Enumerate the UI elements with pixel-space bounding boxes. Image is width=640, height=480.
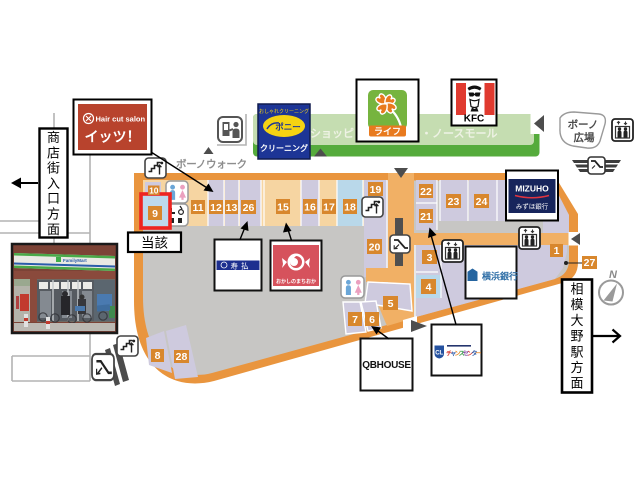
svg-text:商店街入口方面: 商店街入口方面 bbox=[47, 130, 60, 237]
svg-text:10: 10 bbox=[149, 186, 159, 196]
svg-text:18: 18 bbox=[344, 202, 356, 214]
svg-text:CL: CL bbox=[435, 351, 443, 357]
svg-text:ボーノウォーク: ボーノウォーク bbox=[176, 158, 247, 171]
svg-text:7: 7 bbox=[352, 314, 358, 326]
svg-text:ショッピ: ショッピ bbox=[310, 127, 354, 140]
svg-text:23: 23 bbox=[448, 196, 460, 208]
svg-text:5: 5 bbox=[388, 298, 394, 310]
svg-text:QBHOUSE: QBHOUSE bbox=[362, 360, 411, 371]
svg-text:KFC: KFC bbox=[464, 114, 485, 125]
svg-text:28: 28 bbox=[176, 351, 188, 363]
svg-text:ライフ: ライフ bbox=[374, 127, 401, 137]
svg-text:クリーニング: クリーニング bbox=[260, 143, 308, 153]
svg-text:15: 15 bbox=[277, 202, 289, 214]
svg-text:おかしのまちおか: おかしのまちおか bbox=[276, 278, 316, 285]
svg-text:20: 20 bbox=[369, 242, 381, 254]
svg-text:みずほ銀行: みずほ銀行 bbox=[516, 202, 549, 211]
svg-text:N: N bbox=[609, 269, 618, 281]
svg-text:ボーノ: ボーノ bbox=[568, 118, 599, 131]
svg-text:ー: ー bbox=[475, 351, 481, 358]
svg-text:横浜銀行: 横浜銀行 bbox=[482, 271, 518, 282]
svg-text:4: 4 bbox=[426, 282, 432, 294]
svg-text:12: 12 bbox=[210, 202, 222, 214]
svg-text:26: 26 bbox=[243, 202, 255, 214]
svg-text:19: 19 bbox=[370, 184, 382, 196]
svg-text:22: 22 bbox=[420, 186, 432, 198]
svg-text:MIZUHO: MIZUHO bbox=[515, 184, 549, 194]
svg-text:Hair cut salon: Hair cut salon bbox=[96, 115, 146, 124]
svg-text:6: 6 bbox=[369, 314, 375, 326]
svg-text:広場: 広場 bbox=[574, 131, 595, 144]
svg-text:イッツ！: イッツ！ bbox=[85, 129, 141, 145]
svg-text:11: 11 bbox=[192, 202, 203, 214]
svg-text:9: 9 bbox=[152, 208, 158, 220]
svg-text:3: 3 bbox=[427, 252, 433, 264]
svg-text:13: 13 bbox=[226, 202, 238, 214]
svg-text:1: 1 bbox=[554, 245, 560, 257]
svg-text:27: 27 bbox=[584, 257, 596, 269]
svg-text:8: 8 bbox=[155, 350, 161, 362]
svg-text:当該: 当該 bbox=[141, 236, 168, 251]
svg-text:・ノースモール: ・ノースモール bbox=[421, 128, 497, 140]
svg-text:ポニー: ポニー bbox=[275, 122, 301, 132]
svg-text:FamilyMart: FamilyMart bbox=[63, 258, 87, 263]
svg-text:21: 21 bbox=[420, 211, 432, 223]
svg-text:相模大野駅方面: 相模大野駅方面 bbox=[570, 282, 583, 391]
svg-text:17: 17 bbox=[323, 202, 335, 214]
svg-text:24: 24 bbox=[476, 196, 488, 208]
svg-text:寿払: 寿払 bbox=[231, 261, 252, 271]
svg-text:16: 16 bbox=[304, 202, 316, 214]
svg-text:おしゃれクリーニング: おしゃれクリーニング bbox=[259, 108, 309, 115]
